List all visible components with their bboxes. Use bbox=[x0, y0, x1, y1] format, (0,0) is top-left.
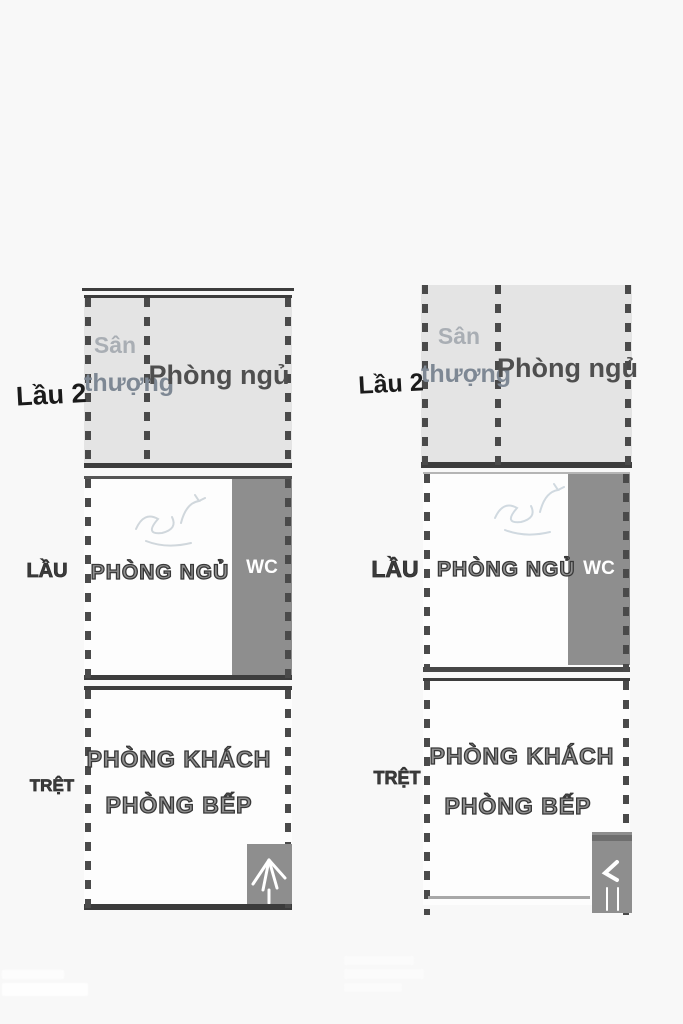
terrace-room-label: Sân thượng bbox=[421, 317, 497, 393]
wc-block: WC bbox=[232, 479, 292, 675]
wc-label: WC bbox=[232, 557, 292, 579]
floor-line bbox=[428, 896, 590, 899]
stairs-icon bbox=[247, 891, 292, 908]
kitchen-label: PHÒNG BẾP bbox=[84, 792, 274, 819]
faint-sketch-icon bbox=[126, 493, 216, 556]
living-room-label: PHÒNG KHÁCH bbox=[84, 746, 274, 773]
level-label-floor1: LẦU bbox=[368, 556, 422, 583]
floor-section-level1: WC PHÒNG NGỦ bbox=[84, 476, 292, 680]
faint-sketch-icon bbox=[485, 482, 575, 545]
floor-plan-photo: Sân thượng Phòng ngủ WC PHÒN bbox=[0, 0, 683, 1024]
bedroom-label: PHÒNG NGỦ bbox=[437, 558, 567, 582]
level-label-floor2: Lầu 2 bbox=[15, 378, 81, 412]
level-label-floor2: Lầu 2 bbox=[357, 368, 424, 400]
living-room-label: PHÒNG KHÁCH bbox=[427, 743, 617, 770]
floor-section-level2: Sân thượng Phòng ngủ bbox=[84, 295, 292, 468]
wall-dashed-right bbox=[285, 479, 291, 679]
floor-section-ground: PHÒNG KHÁCH PHÒNG BẾP bbox=[84, 686, 292, 910]
terrace-line1: Sân bbox=[94, 332, 136, 358]
terrace-line1: Sân bbox=[438, 323, 480, 349]
wall-dashed-right bbox=[623, 474, 629, 671]
wc-label: WC bbox=[568, 558, 630, 580]
level-label-ground: TRỆT bbox=[26, 776, 78, 796]
floor-section-level2: Sân thượng Phòng ngủ bbox=[421, 285, 632, 468]
level-label-floor1: LẦU bbox=[22, 560, 72, 583]
kitchen-label: PHÒNG BẾP bbox=[423, 793, 613, 820]
watermark-bottom-center bbox=[344, 956, 424, 996]
stairs-icon bbox=[592, 900, 632, 917]
bedroom-upper-label: Phòng ngủ bbox=[497, 353, 632, 384]
wc-block: WC bbox=[568, 474, 630, 665]
floor-section-ground: PHÒNG KHÁCH PHÒNG BẾP bbox=[423, 678, 630, 905]
floor-section-level1: WC PHÒNG NGỦ bbox=[423, 472, 630, 672]
bedroom-upper-label: Phòng ngủ bbox=[146, 360, 292, 391]
bedroom-label: PHÒNG NGỦ bbox=[90, 561, 230, 585]
roof-line bbox=[82, 288, 294, 291]
watermark-bottom-left bbox=[2, 970, 88, 1000]
terrace-room-label: Sân thượng bbox=[84, 326, 146, 402]
stairs-block bbox=[592, 832, 632, 913]
wall-dashed-left bbox=[424, 474, 430, 671]
stairs-block bbox=[247, 844, 292, 904]
level-label-ground: TRỆT bbox=[370, 768, 424, 789]
